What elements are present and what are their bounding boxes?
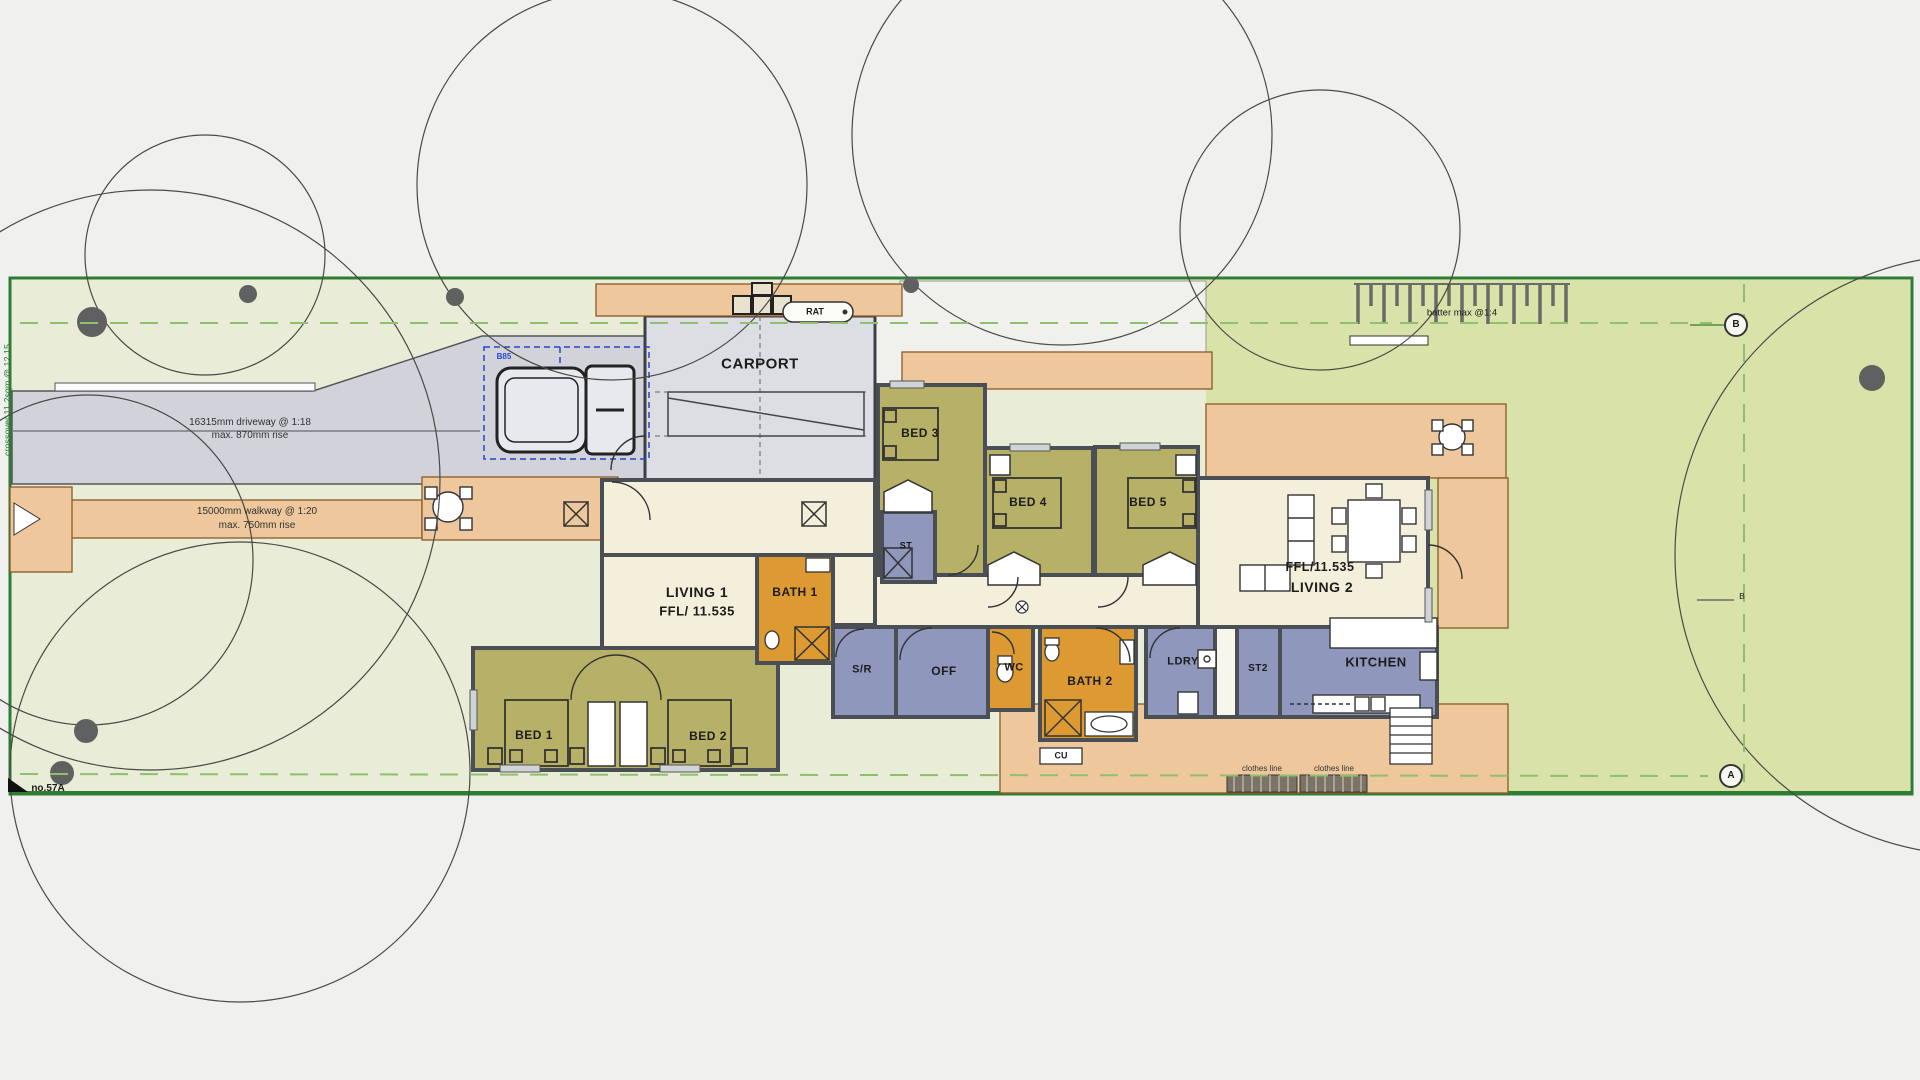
- clothes-line-label-1: clothes line: [1242, 765, 1282, 773]
- lot-number-label: no.57A: [31, 784, 64, 794]
- room-label-living2: LIVING 2: [1291, 580, 1353, 594]
- section-marker-b-small: B: [1739, 592, 1745, 601]
- clothes-lines: [1227, 775, 1367, 792]
- driveway-note-line1: 16315mm driveway @ 1:18: [189, 418, 311, 428]
- car-symbol: [497, 366, 634, 454]
- room-label-sr: S/R: [852, 665, 872, 676]
- room-label-bath2: BATH 2: [1067, 675, 1112, 687]
- section-marker-a: A: [1727, 771, 1734, 781]
- room-label-bed2: BED 2: [689, 730, 727, 742]
- room-label-off: OFF: [931, 665, 957, 677]
- room-label-st: ST: [900, 542, 913, 551]
- room-label-bed1: BED 1: [515, 729, 553, 741]
- stair-symbol: [1390, 708, 1432, 764]
- walkway-note-line1: 15000mm walkway @ 1:20: [197, 507, 317, 517]
- ffl-label-living2: FFL/11.535: [1286, 561, 1355, 574]
- cu-label: CU: [1055, 752, 1068, 761]
- room-label-bath1: BATH 1: [772, 586, 817, 598]
- floor-waste-symbol: [1016, 601, 1028, 613]
- clothes-line-label-2: clothes line: [1314, 765, 1354, 773]
- driveway-note-line2: max. 870mm rise: [212, 431, 289, 441]
- section-marker-b: B: [1732, 320, 1739, 330]
- room-label-ldry: LDRY: [1167, 657, 1199, 668]
- walkway-note-line2: max. 750mm rise: [219, 521, 296, 531]
- ffl-label-living1: FFL/ 11.535: [659, 605, 735, 618]
- room-label-bed5: BED 5: [1129, 496, 1167, 508]
- site-plan-drawing: [0, 0, 1920, 1080]
- room-label-bed3: BED 3: [901, 427, 939, 439]
- b85-label: B85: [497, 353, 512, 361]
- carport-structure: [645, 316, 875, 480]
- room-label-st2: ST2: [1248, 664, 1268, 674]
- left-boundary-note: crossover 11.2sqm @ 12.15: [4, 344, 13, 456]
- room-label-living1: LIVING 1: [666, 585, 728, 599]
- rainwater-tank-label: RAT: [806, 308, 824, 317]
- room-label-kitchen: KITCHEN: [1345, 656, 1406, 669]
- room-label-wc: WC: [1004, 663, 1023, 674]
- room-label-carport: CARPORT: [721, 357, 799, 372]
- batter-label: batter max @1:4: [1427, 308, 1497, 318]
- room-label-bed4: BED 4: [1009, 496, 1047, 508]
- paved-area: [900, 281, 1206, 352]
- floor-plan-canvas: CARPORT BED 3 BED 4 BED 5 ST LIVING 1 FF…: [0, 0, 1920, 1080]
